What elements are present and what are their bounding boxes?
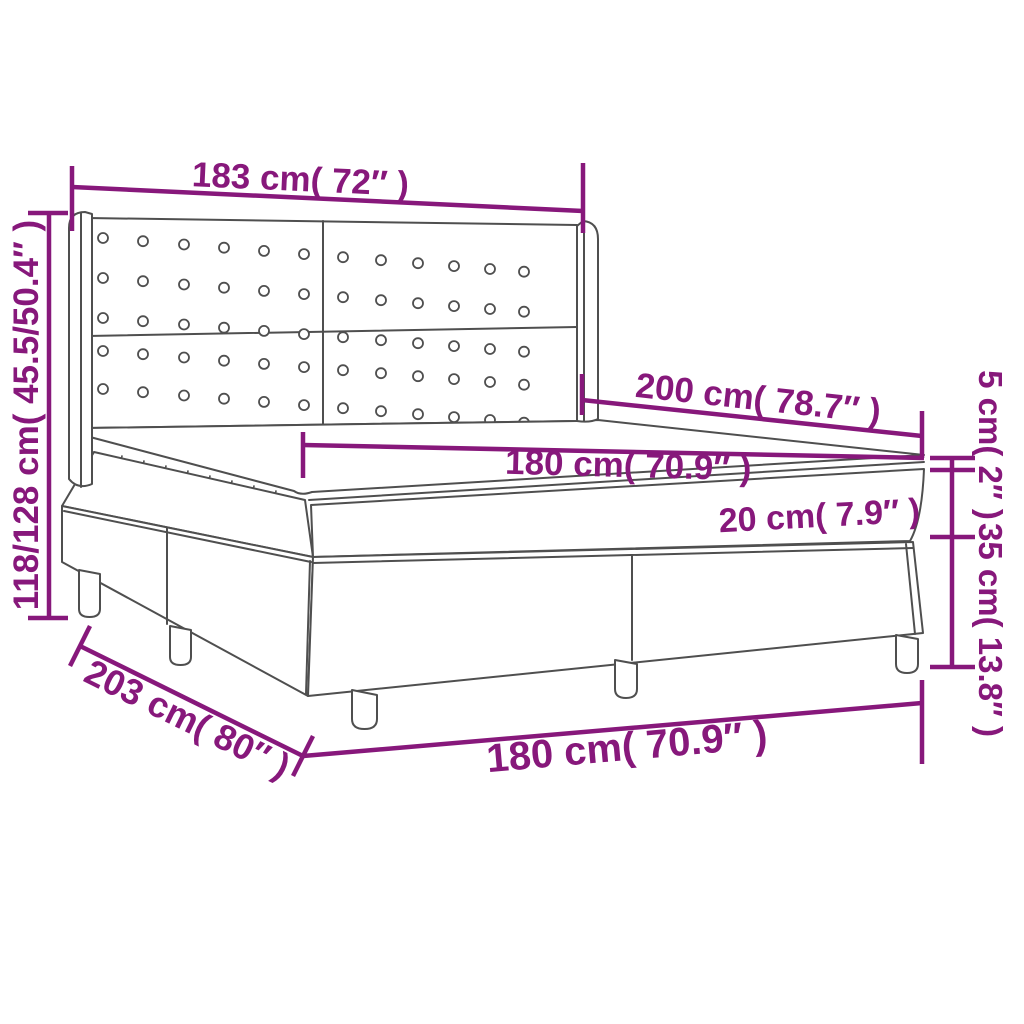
bed-leg — [79, 570, 100, 617]
headboard-button — [299, 400, 309, 410]
headboard-button — [179, 240, 189, 250]
headboard-button — [299, 362, 309, 372]
headboard-button — [179, 391, 189, 401]
headboard-button — [259, 286, 269, 296]
diagram-canvas: 183 cm( 72″ ) 118/128 cm( 45.5/50.4″ ) 2… — [0, 0, 1024, 1024]
headboard-button — [138, 349, 148, 359]
headboard-button — [219, 394, 229, 404]
headboard-button — [376, 255, 386, 265]
headboard-panel — [88, 218, 577, 428]
dim-tick — [70, 626, 90, 666]
headboard-button — [485, 264, 495, 274]
base-height-label: 35 cm( 13.8″ ) — [972, 523, 1009, 737]
headboard-button — [519, 347, 529, 357]
headboard-button — [219, 283, 229, 293]
mattress-width-label: 180 cm( 70.9″ ) — [505, 443, 752, 488]
headboard-button — [413, 338, 423, 348]
headboard-button — [485, 344, 495, 354]
bed-leg — [615, 660, 637, 698]
headboard-button — [98, 384, 108, 394]
headboard-button — [519, 267, 529, 277]
bed-dimension-diagram: 183 cm( 72″ ) 118/128 cm( 45.5/50.4″ ) 2… — [0, 0, 1024, 1024]
dim-right-stack — [930, 458, 975, 667]
bed-leg — [896, 635, 918, 673]
headboard-button — [376, 368, 386, 378]
headboard-button — [449, 374, 459, 384]
headboard-button — [98, 313, 108, 323]
headboard-button — [376, 406, 386, 416]
headboard-button — [338, 292, 348, 302]
headboard-button — [449, 341, 459, 351]
headboard-button — [138, 236, 148, 246]
headboard-button — [376, 335, 386, 345]
headboard-button — [413, 371, 423, 381]
headboard-button — [299, 289, 309, 299]
headboard-button — [259, 326, 269, 336]
headboard-button — [413, 409, 423, 419]
headboard-button — [299, 329, 309, 339]
headboard-button — [485, 377, 495, 387]
headboard-button — [179, 280, 189, 290]
headboard-button — [259, 359, 269, 369]
headboard-button — [376, 295, 386, 305]
headboard-button — [519, 380, 529, 390]
headboard-button — [485, 304, 495, 314]
headboard-button — [413, 298, 423, 308]
headboard-button — [138, 276, 148, 286]
headboard-button — [338, 252, 348, 262]
headboard-button — [449, 261, 459, 271]
headboard-button — [179, 320, 189, 330]
headboard-button — [179, 353, 189, 363]
headboard-button — [219, 356, 229, 366]
headboard-width-label: 183 cm( 72″ ) — [191, 155, 410, 204]
headboard-button — [219, 243, 229, 253]
headboard-button — [338, 365, 348, 375]
bed-leg — [170, 626, 191, 665]
headboard-button — [138, 387, 148, 397]
bed-height-label: 118/128 cm( 45.5/50.4″ ) — [7, 220, 46, 610]
mattress-length-label: 200 cm( 78.7″ ) — [634, 366, 883, 431]
headboard-button — [259, 397, 269, 407]
headboard-button — [338, 403, 348, 413]
headboard-button — [519, 307, 529, 317]
headboard-button — [449, 301, 459, 311]
headboard-button — [449, 412, 459, 422]
headboard-button — [338, 332, 348, 342]
headboard-button — [299, 249, 309, 259]
bed-outline — [62, 212, 924, 729]
headboard-button — [219, 323, 229, 333]
base-width-label: 180 cm( 70.9″ ) — [485, 713, 769, 781]
headboard-button — [413, 258, 423, 268]
headboard-button — [259, 246, 269, 256]
headboard-button — [98, 346, 108, 356]
bed-leg — [352, 690, 377, 729]
headboard-button — [98, 273, 108, 283]
headboard-button — [138, 316, 148, 326]
headboard-button — [98, 233, 108, 243]
topper-thickness-label: 5 cm( 2″ ) — [972, 370, 1009, 520]
